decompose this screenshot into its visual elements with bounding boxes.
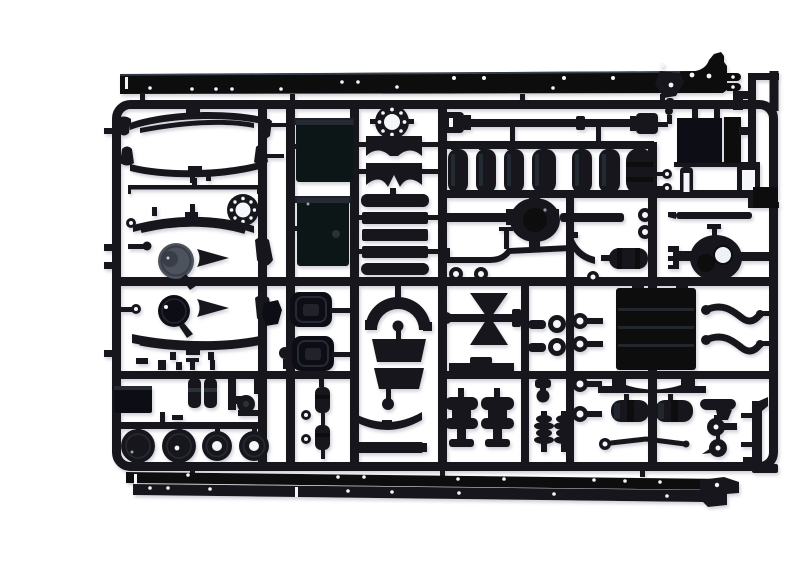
cross-member-flat (351, 442, 427, 453)
sprue-illustration (40, 16, 800, 546)
o-ring-b (301, 434, 311, 444)
o-ring-4 (638, 208, 652, 222)
mounting-plate (114, 386, 152, 413)
spring-hanger-1a (117, 117, 131, 136)
sprue-photo: Black injection-molded plastic sprue (pa… (40, 16, 800, 546)
o-ring-3 (587, 271, 599, 283)
fuel-tank-body-2 (288, 196, 351, 266)
muffler-vertical (626, 148, 653, 195)
o-ring-2 (474, 267, 488, 281)
stabilizer-link-1 (680, 167, 693, 198)
radiator-plate (616, 280, 696, 370)
o-ring-1 (449, 267, 463, 281)
torque-rod-straight (668, 212, 752, 219)
corner-plate (753, 187, 778, 208)
o-ring-5 (638, 225, 652, 239)
spring-hanger-2a (120, 147, 134, 166)
o-ring-a (301, 410, 311, 420)
fuel-tank-body-1 (288, 118, 354, 182)
